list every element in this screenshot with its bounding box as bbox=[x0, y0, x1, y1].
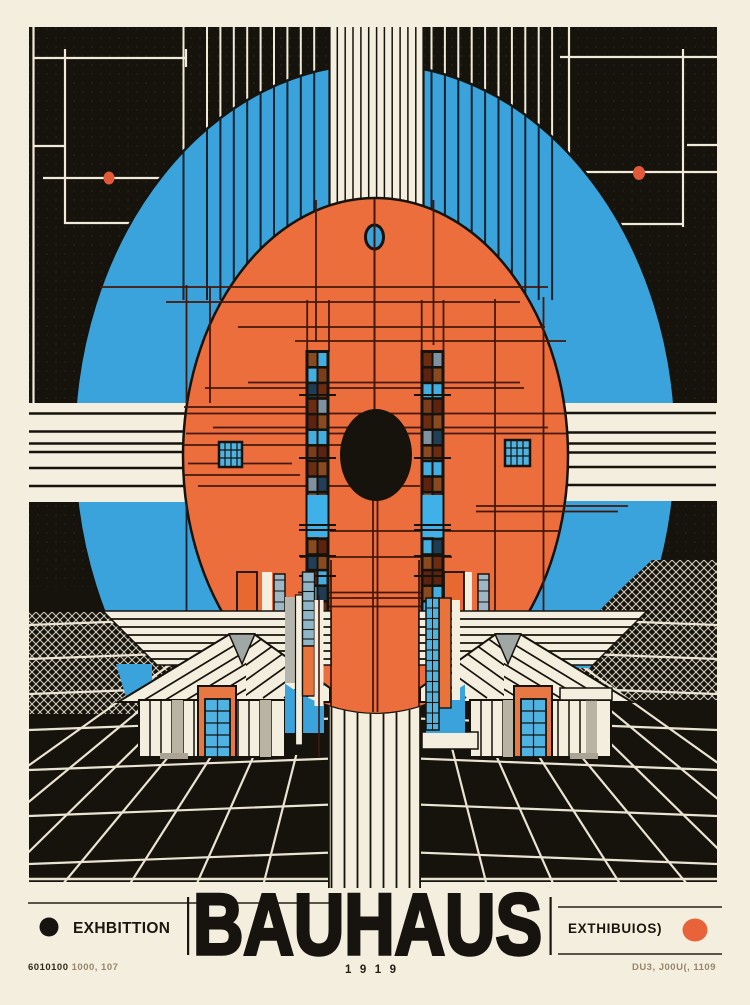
svg-text:DU3, J00U(, 1109: DU3, J00U(, 1109 bbox=[632, 962, 716, 973]
svg-text:BAUHAUS: BAUHAUS bbox=[193, 877, 542, 973]
svg-text:EXTHIBUIOS): EXTHIBUIOS) bbox=[568, 921, 663, 936]
svg-text:EXHBITTION: EXHBITTION bbox=[73, 920, 172, 937]
svg-text:6010100 1000, 107: 6010100 1000, 107 bbox=[28, 962, 118, 973]
